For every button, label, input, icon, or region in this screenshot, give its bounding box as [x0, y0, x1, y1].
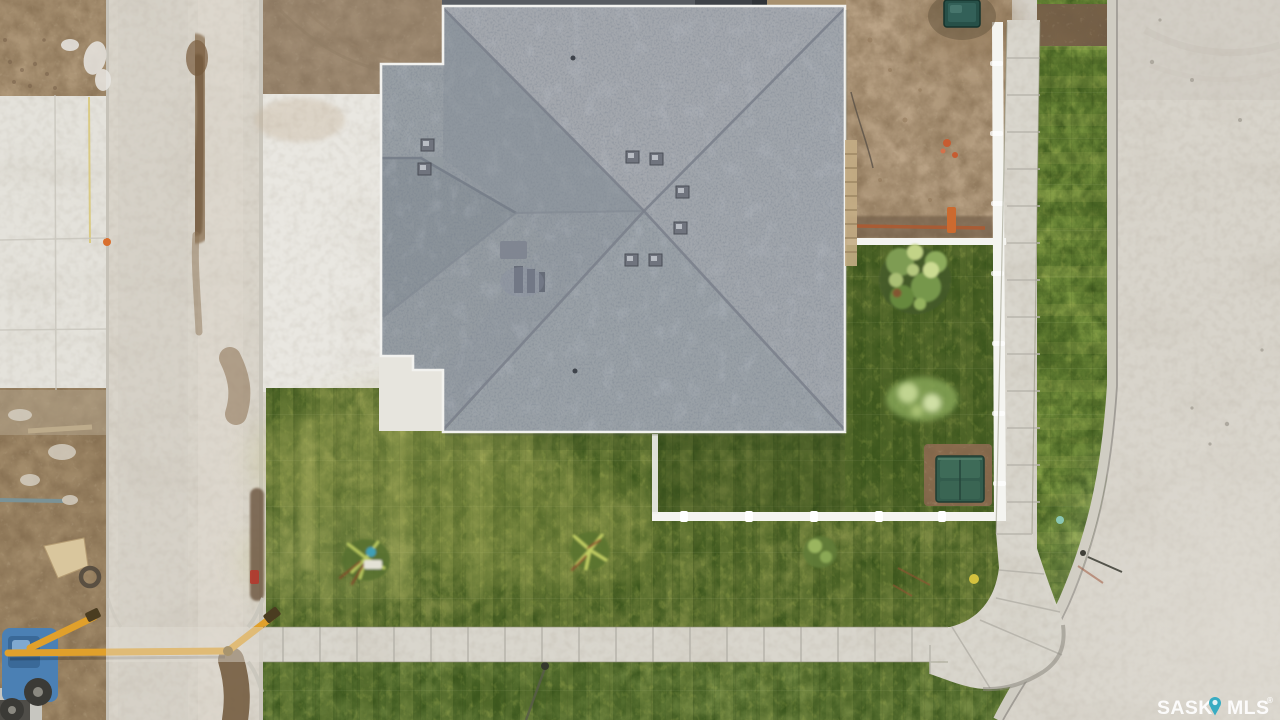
svg-text:SASK: SASK: [1157, 697, 1213, 719]
svg-text:®: ®: [1267, 696, 1273, 705]
svg-text:MLS: MLS: [1227, 697, 1269, 719]
